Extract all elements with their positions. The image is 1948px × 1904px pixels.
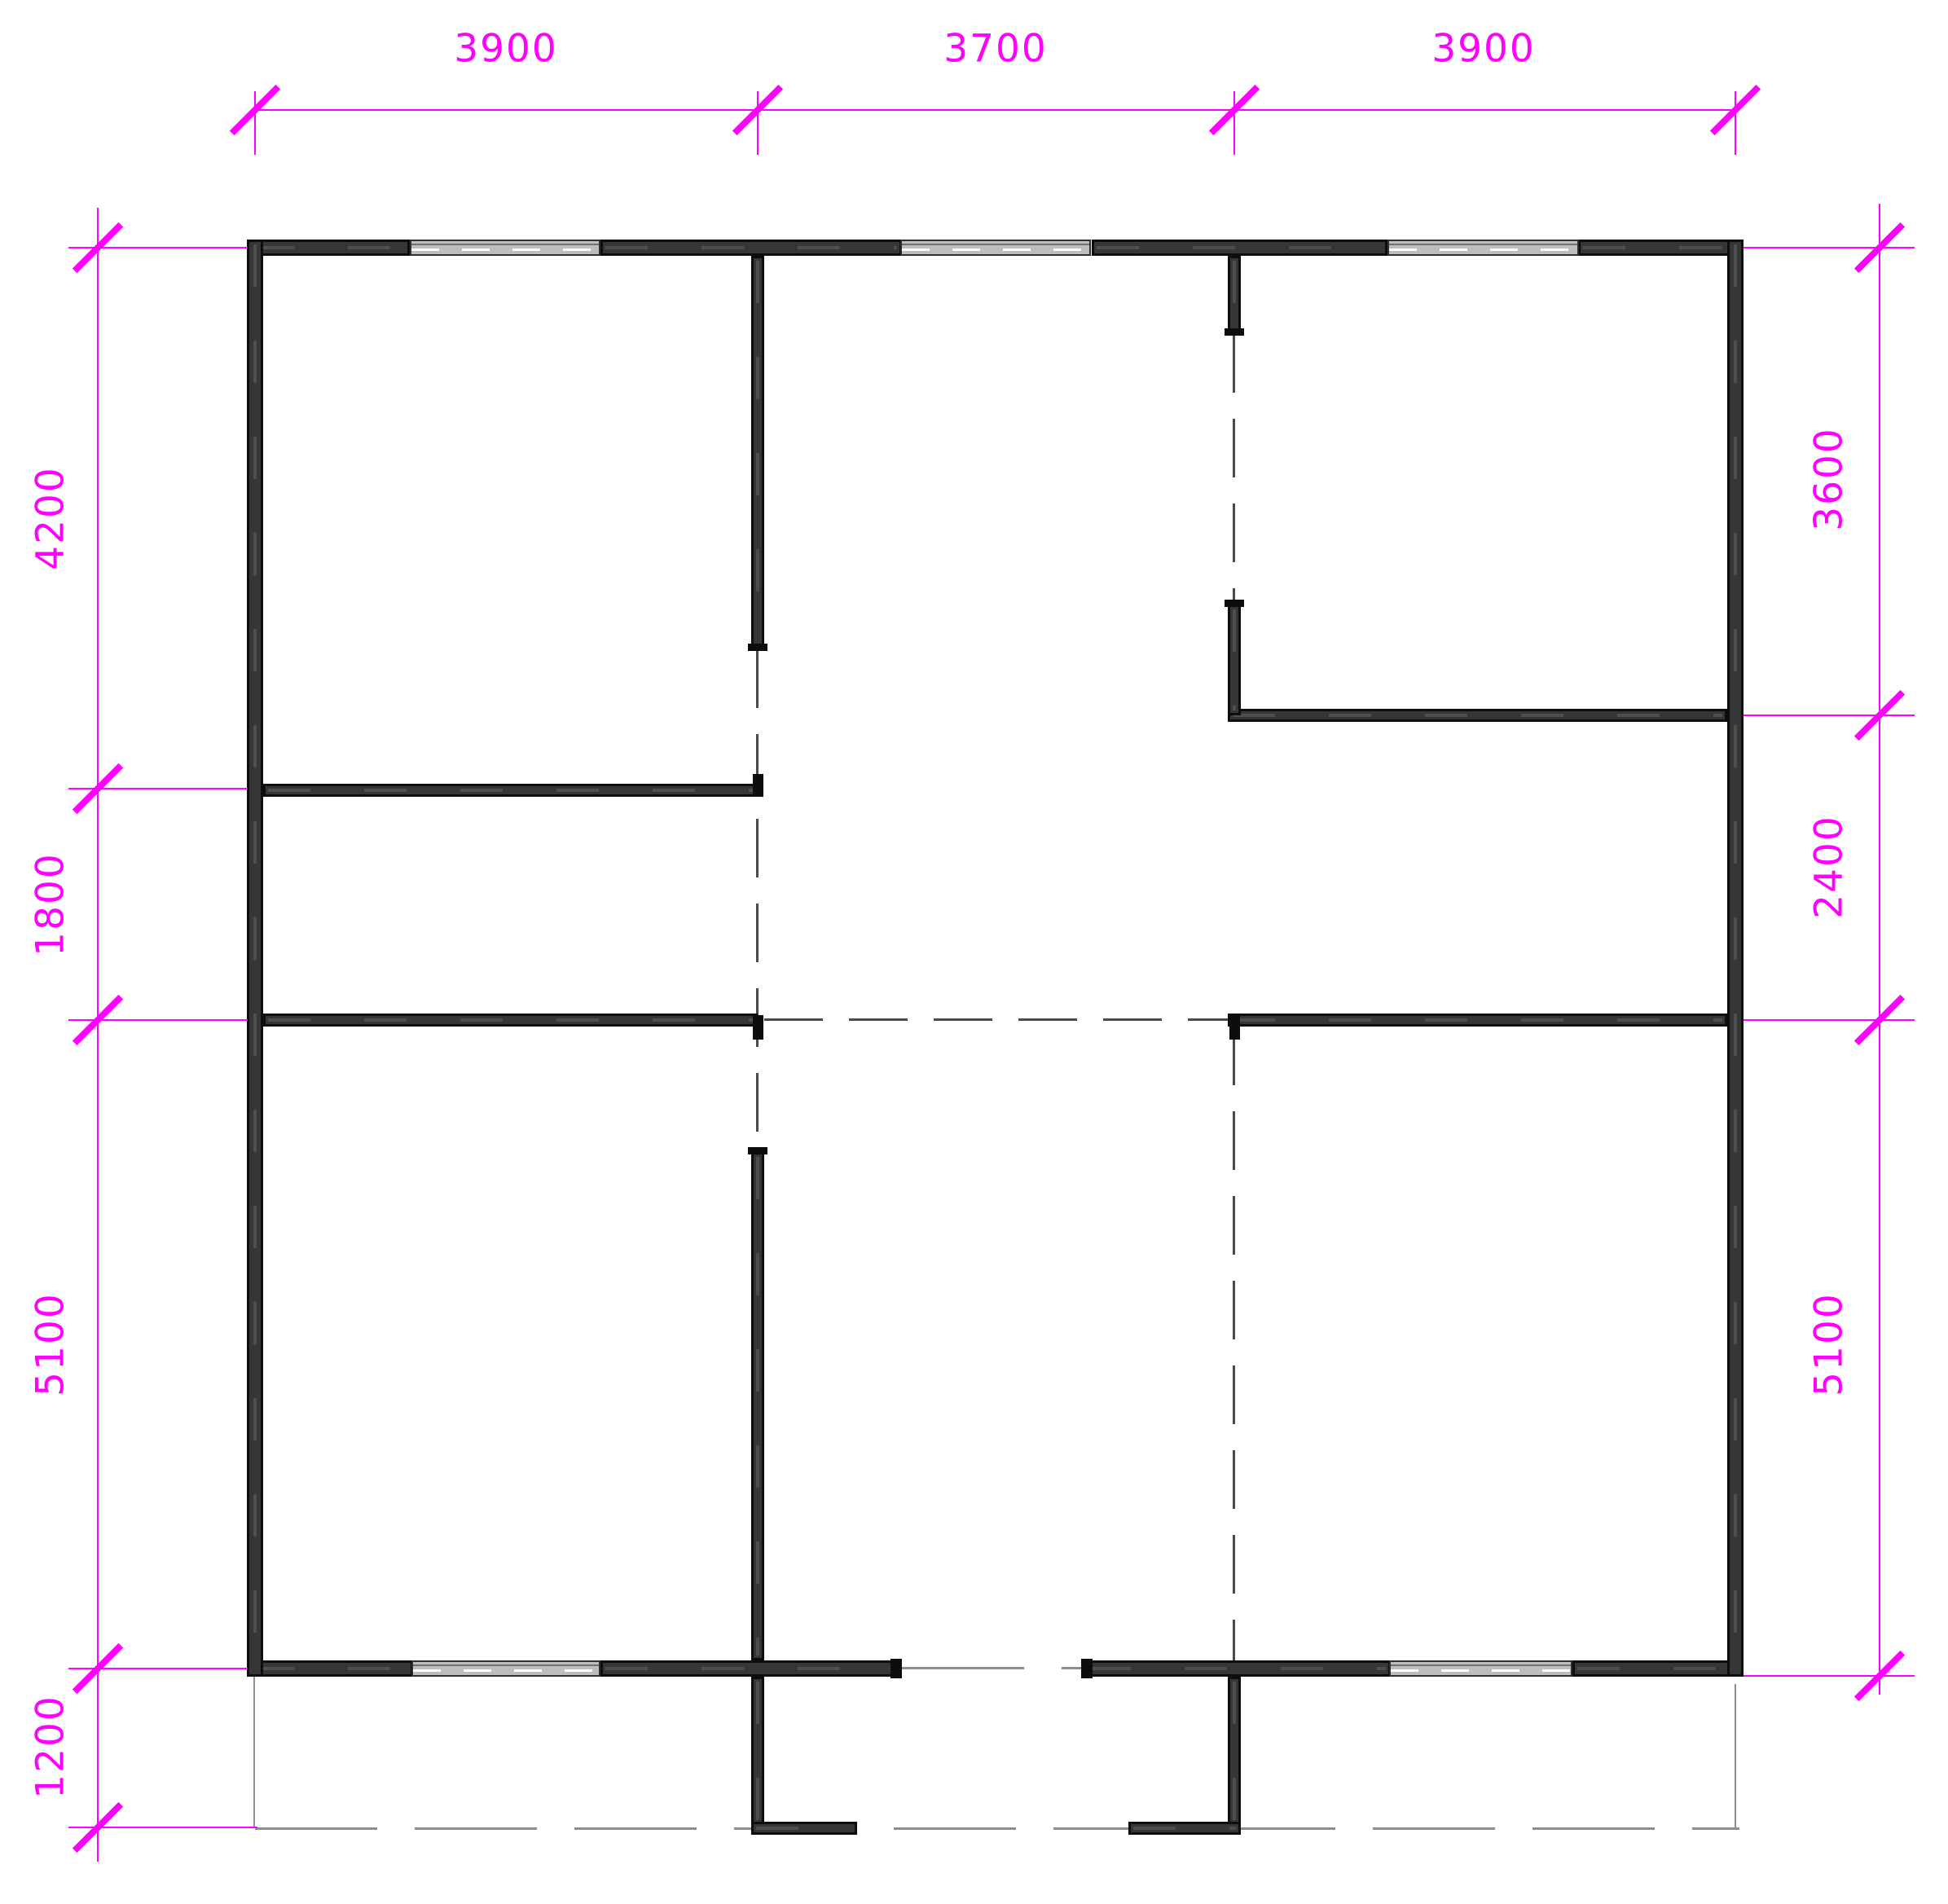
dimension-label: 1800	[29, 852, 73, 956]
dimension-label: 5100	[29, 1292, 73, 1396]
extension-line	[1744, 1019, 1915, 1021]
dimension-layer: 3900370039004200180051001200360024005100	[0, 0, 1948, 1904]
dimension-label: 2400	[1807, 815, 1852, 919]
extension-line	[1744, 715, 1915, 716]
dimension-label: 3700	[943, 27, 1048, 72]
dimension-line	[97, 208, 99, 1862]
extension-line	[1735, 91, 1736, 155]
extension-line	[254, 91, 256, 155]
dimension-label: 3900	[454, 27, 558, 72]
floor-plan: 3900370039004200180051001200360024005100	[0, 0, 1948, 1904]
dimension-label: 3600	[1807, 427, 1852, 531]
extension-line	[1233, 91, 1235, 155]
extension-line	[757, 91, 759, 155]
dimension-label: 4200	[29, 466, 73, 570]
dimension-label: 5100	[1807, 1292, 1852, 1396]
dimension-line	[255, 109, 1735, 111]
dimension-line	[1879, 204, 1880, 1695]
dimension-label: 1200	[29, 1695, 73, 1799]
extension-line	[1744, 247, 1915, 248]
extension-line	[1744, 1675, 1915, 1677]
dimension-label: 3900	[1431, 27, 1536, 72]
